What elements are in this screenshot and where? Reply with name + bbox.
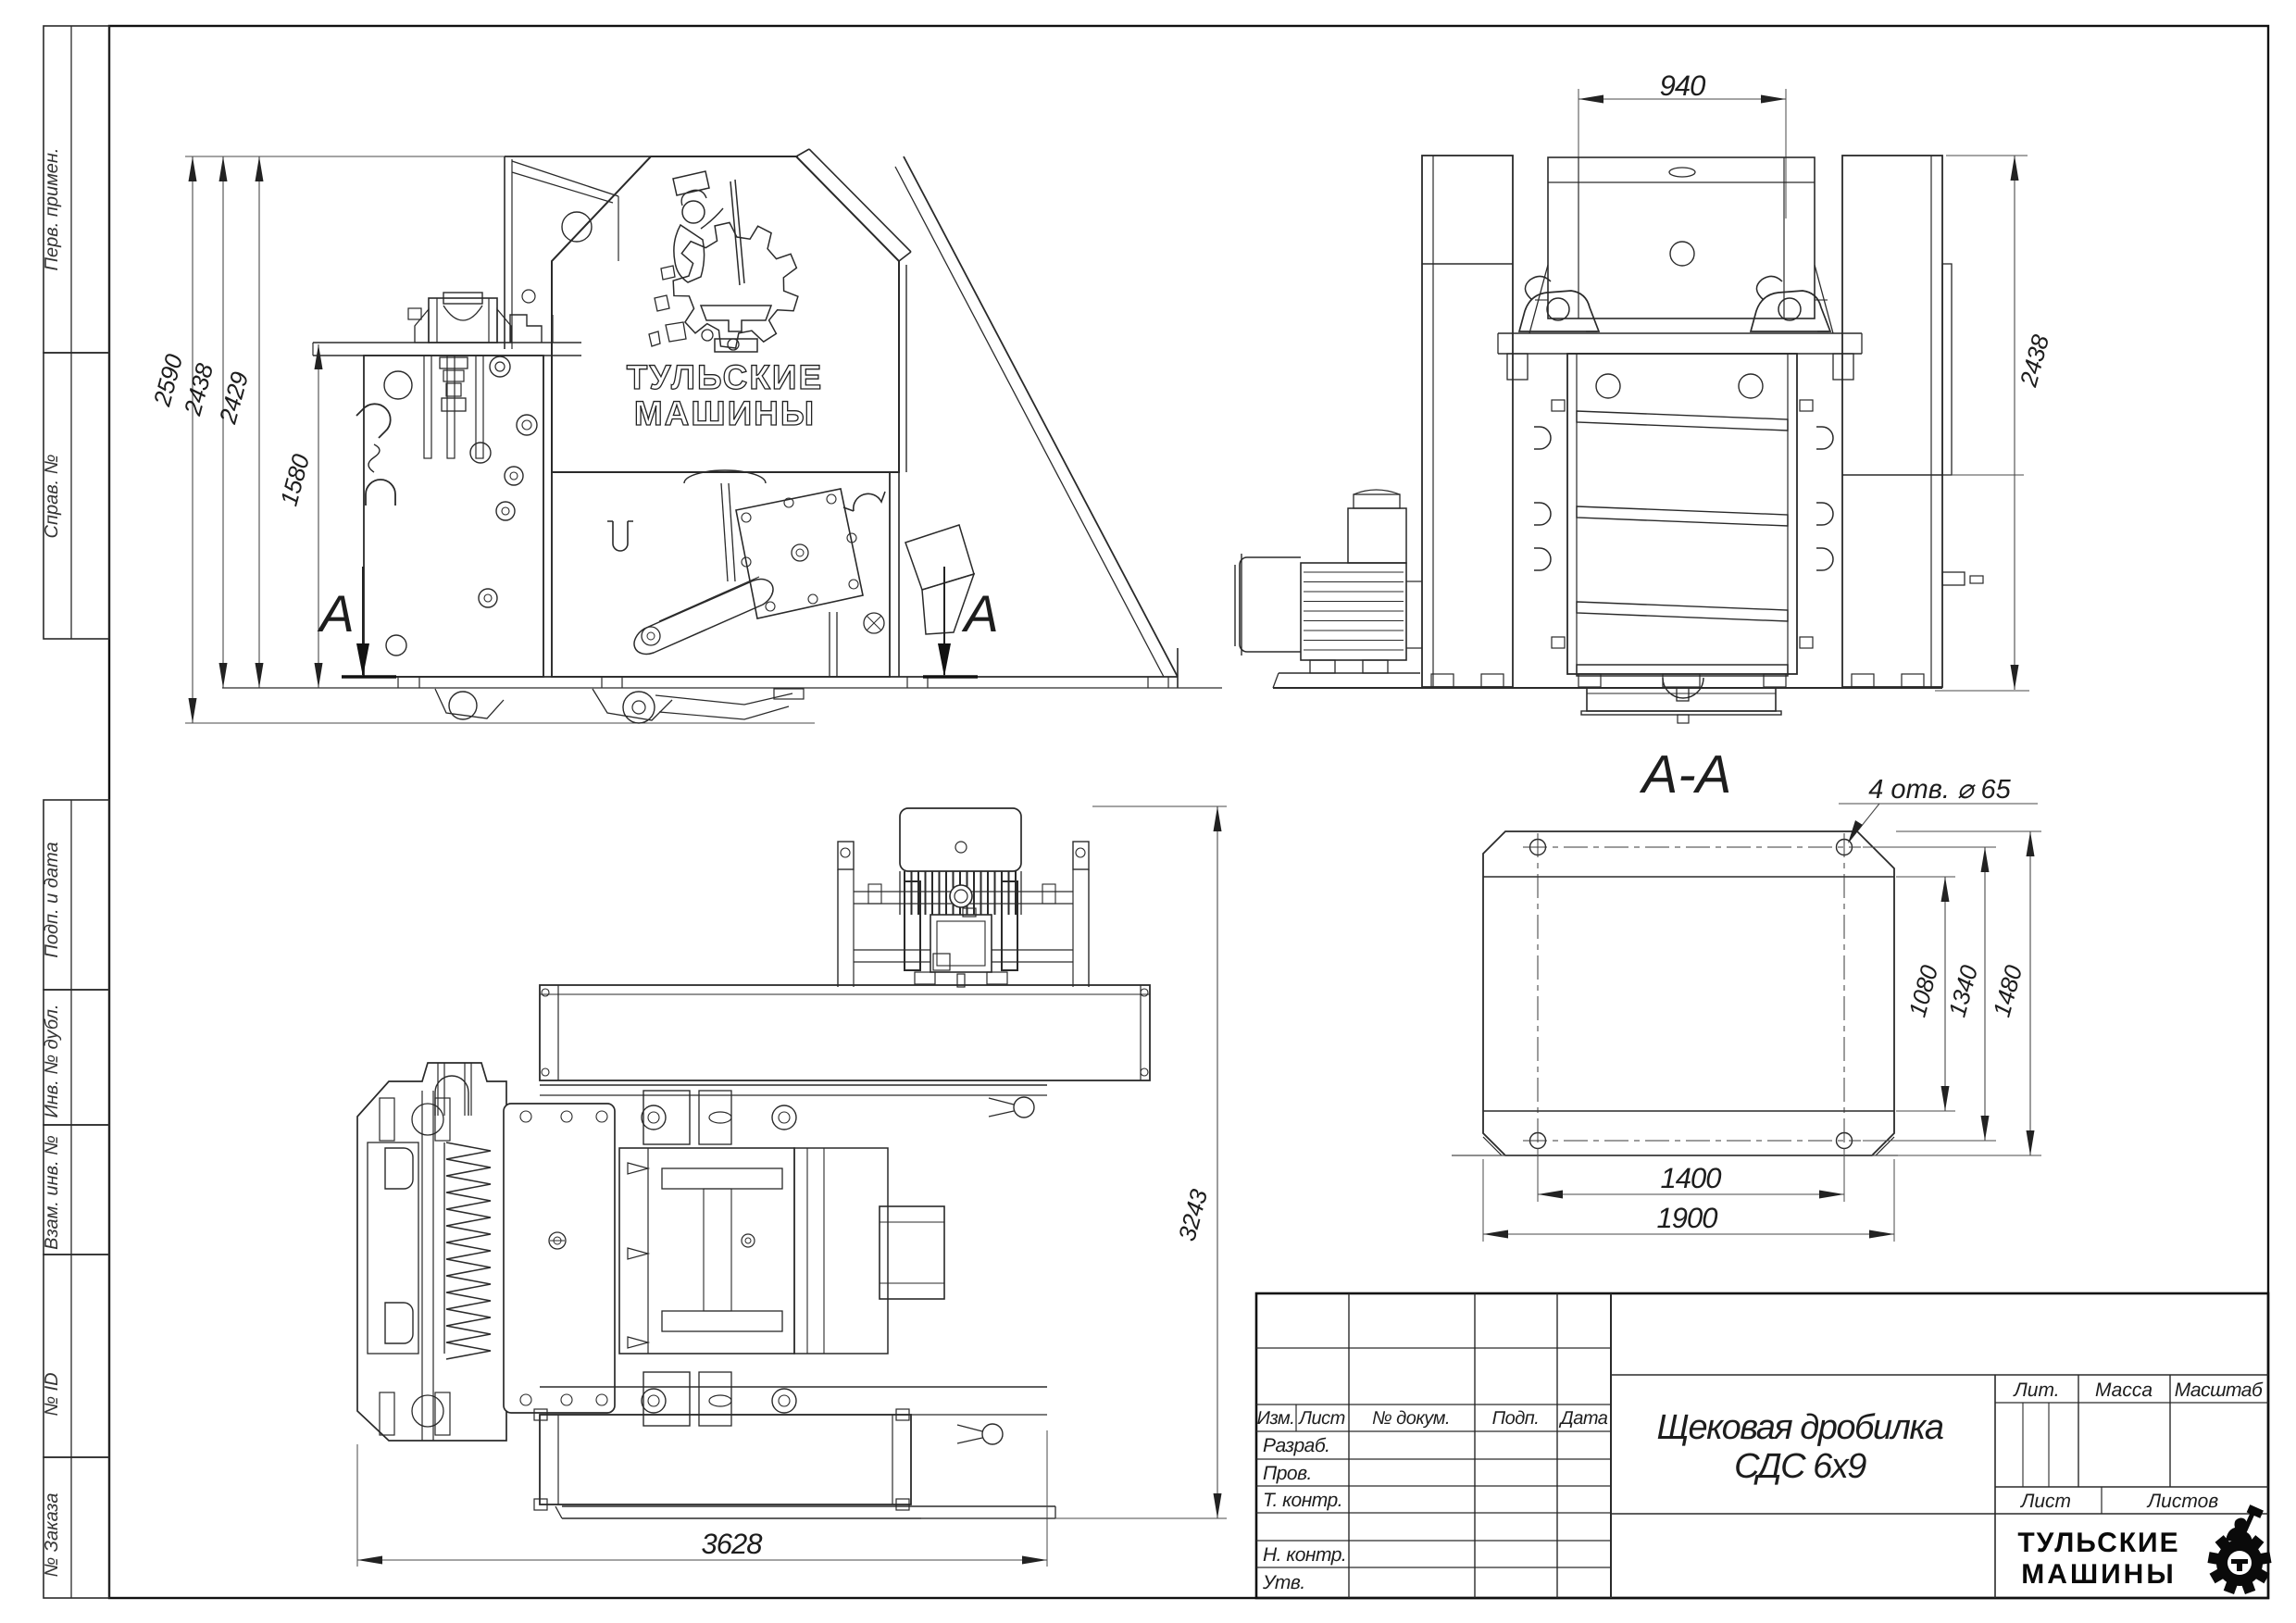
svg-text:Изм.: Изм. (1257, 1408, 1295, 1429)
svg-text:1900: 1900 (1657, 1202, 1718, 1234)
svg-text:МАШИНЫ: МАШИНЫ (634, 394, 816, 432)
svg-text:Пров.: Пров. (1263, 1463, 1312, 1484)
svg-text:№ докум.: № докум. (1372, 1408, 1450, 1429)
svg-text:А: А (961, 584, 998, 643)
svg-text:Взам. инв. №: Взам. инв. № (42, 1135, 62, 1250)
svg-text:Лист: Лист (1297, 1408, 1345, 1429)
svg-text:Масса: Масса (2095, 1380, 2152, 1401)
svg-text:4 отв. ⌀ 65: 4 отв. ⌀ 65 (1868, 775, 2011, 805)
svg-text:Т. контр.: Т. контр. (1263, 1490, 1342, 1511)
svg-text:Перв. примен.: Перв. примен. (42, 148, 62, 271)
svg-text:А: А (317, 584, 354, 643)
svg-text:ТУЛЬСКИЕ: ТУЛЬСКИЕ (627, 358, 823, 396)
svg-text:Подп.: Подп. (1492, 1408, 1540, 1429)
svg-text:Листов: Листов (2146, 1491, 2219, 1512)
svg-text:Масштаб: Масштаб (2175, 1380, 2264, 1401)
svg-text:3628: 3628 (702, 1528, 764, 1560)
svg-text:Лист: Лист (2019, 1491, 2071, 1512)
svg-text:Инв. № дубл.: Инв. № дубл. (42, 1005, 62, 1118)
svg-text:СДС 6х9: СДС 6х9 (1734, 1447, 1866, 1486)
svg-text:№ ID: № ID (42, 1372, 62, 1416)
svg-text:1400: 1400 (1661, 1162, 1722, 1194)
svg-text:Утв.: Утв. (1262, 1572, 1305, 1593)
svg-text:А-А: А-А (1640, 744, 1732, 805)
svg-text:Разраб.: Разраб. (1263, 1435, 1330, 1456)
svg-text:940: 940 (1660, 69, 1705, 102)
svg-text:Справ. №: Справ. № (42, 455, 62, 539)
svg-text:Лит.: Лит. (2012, 1380, 2059, 1401)
svg-text:ТУЛЬСКИЕ: ТУЛЬСКИЕ (2017, 1528, 2179, 1558)
svg-text:Н. контр.: Н. контр. (1263, 1544, 1346, 1566)
svg-text:Дата: Дата (1559, 1408, 1608, 1429)
svg-text:МАШИНЫ: МАШИНЫ (2021, 1559, 2176, 1590)
svg-text:Щековая дробилка: Щековая дробилка (1657, 1408, 1943, 1447)
svg-text:Подп. и дата: Подп. и дата (42, 842, 62, 957)
svg-text:№ Заказа: № Заказа (42, 1493, 62, 1578)
